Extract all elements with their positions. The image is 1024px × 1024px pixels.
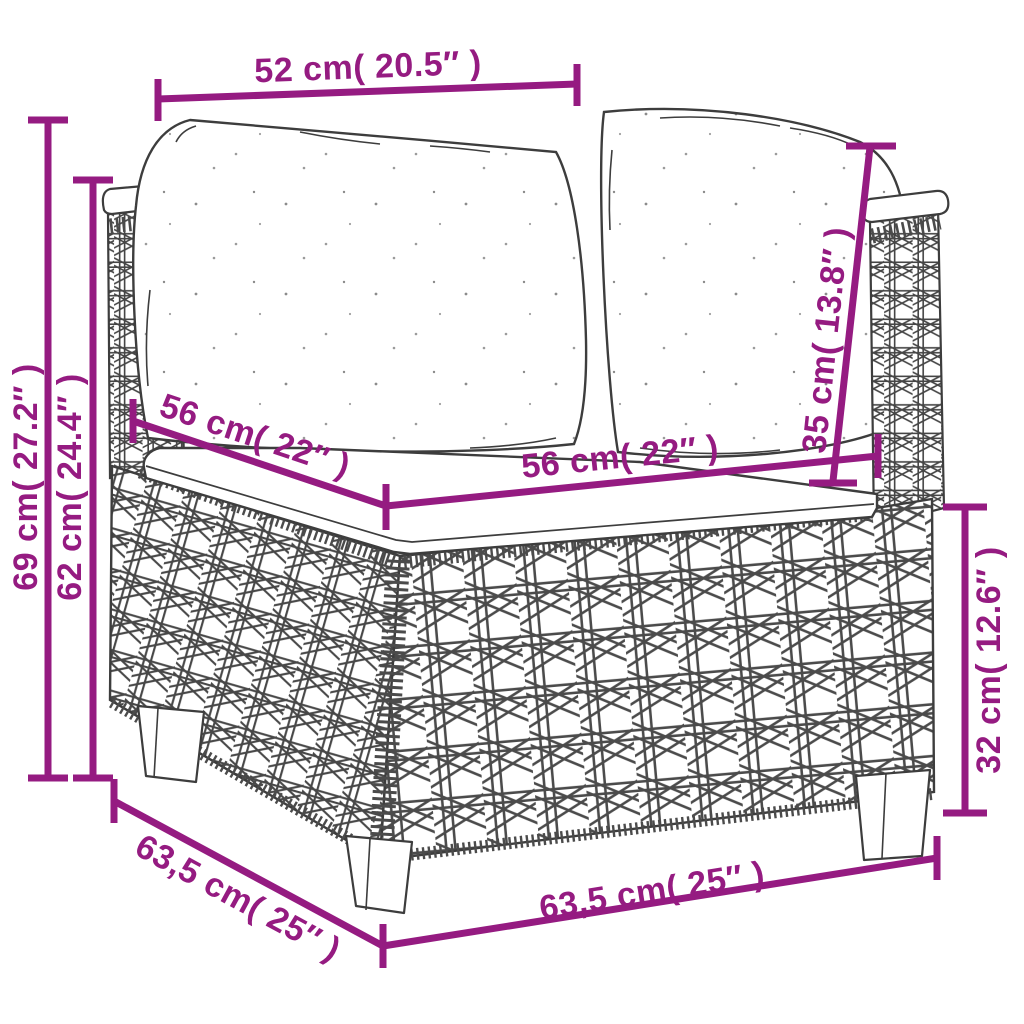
right-leg <box>856 770 930 860</box>
back-cushion-right <box>601 109 907 457</box>
dim-overall-height-line <box>28 120 68 778</box>
back-cushion-left <box>133 120 586 452</box>
dim-seat-height-line <box>943 507 987 813</box>
sofa-illustration <box>0 0 1024 1024</box>
front-leg <box>346 836 412 913</box>
left-leg <box>138 706 204 782</box>
dim-arm-height-line <box>73 180 113 778</box>
product-dimension-diagram: 52 cm( 20.5″ ) 69 cm( 27.2″ ) 62 cm( 24.… <box>0 0 1024 1024</box>
dim-top-width-line <box>158 64 577 121</box>
dim-base-width-line <box>383 836 937 946</box>
